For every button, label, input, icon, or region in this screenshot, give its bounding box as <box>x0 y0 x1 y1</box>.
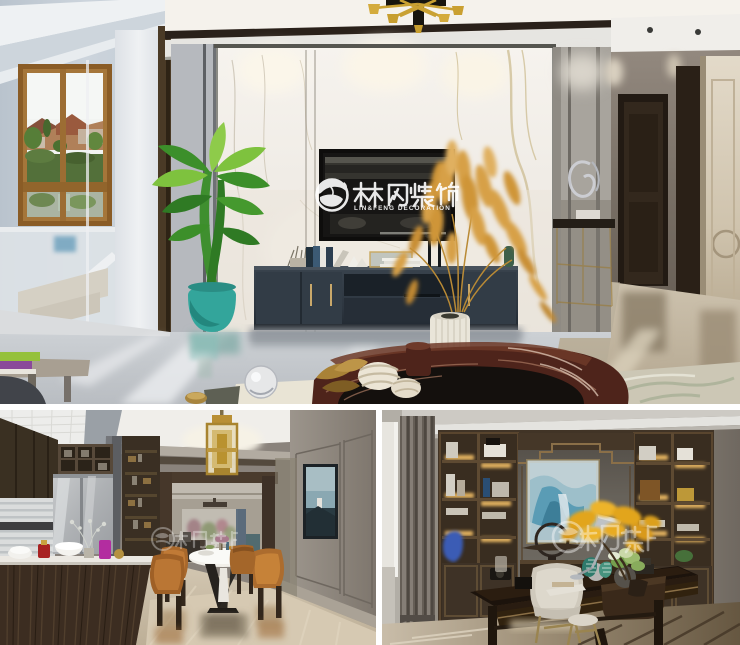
svg-text:LIN&FENG DECORATION: LIN&FENG DECORATION <box>354 205 451 212</box>
